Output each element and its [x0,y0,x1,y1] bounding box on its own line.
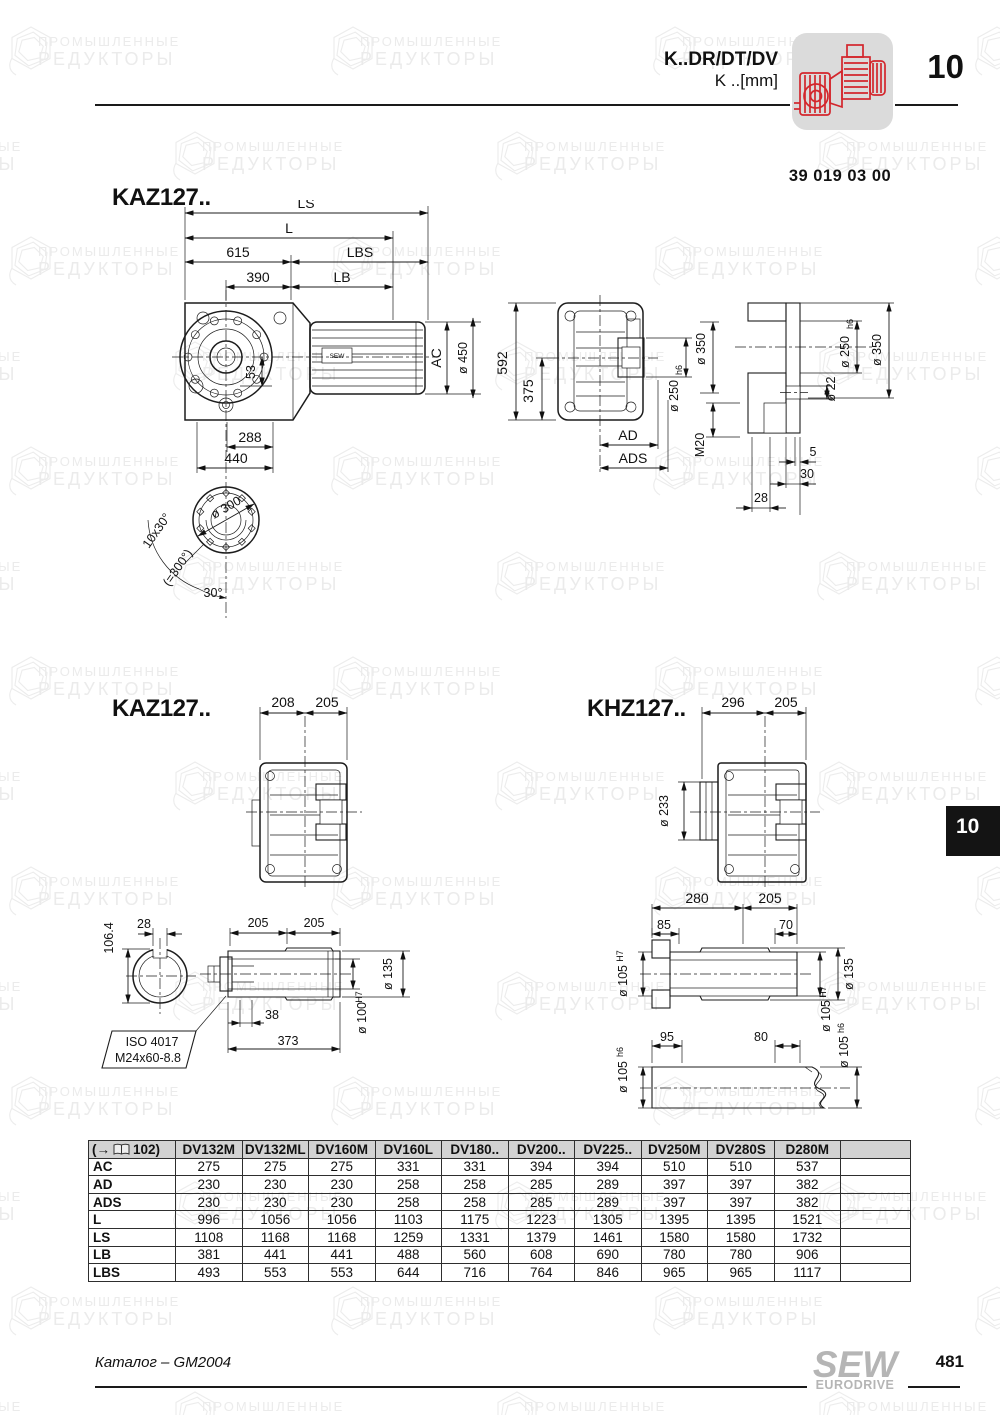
col-header: DV160L [375,1141,442,1159]
dim-ads: ADS [619,450,648,466]
table-cell: 258 [442,1193,509,1211]
watermark: ПРОМЫШЛЕННЫЕРЕДУКТОРЫ [974,1075,1000,1127]
table-cell: 230 [309,1176,376,1194]
table-cell: 510 [641,1158,708,1176]
watermark: ПРОМЫШЛЕННЫЕРЕДУКТОРЫ [0,130,22,182]
row-label: AD [89,1176,176,1194]
dim-205b: 205 [304,916,325,930]
table-cell: 1259 [375,1228,442,1246]
dim-105d: ø 105 [616,1061,630,1093]
table-cell: 1168 [309,1228,376,1246]
dim-105a: ø 105 [616,965,630,997]
table-row: LS11081168116812591331137914611580158017… [89,1228,911,1246]
dim-22: ø 22 [824,376,838,401]
table-cell: 488 [375,1246,442,1264]
table-cell: 1379 [508,1228,575,1246]
callout-screw: M24x60-8.8 [115,1051,181,1065]
dim-80: 80 [754,1030,768,1044]
table-cell: 394 [575,1158,642,1176]
watermark: ПРОМЫШЛЕННЫЕРЕДУКТОРЫ [974,865,1000,917]
table-cell: 644 [375,1264,442,1282]
gearmotor-icon-art [792,33,893,130]
dim-450: ø 450 [456,342,470,374]
col-header: DV180.. [442,1141,509,1159]
row-label: LB [89,1246,176,1264]
col-header: DV132ML [242,1141,309,1159]
watermark: ПРОМЫШЛЕННЫЕРЕДУКТОРЫ [494,130,666,182]
dim-373: 373 [278,1034,299,1048]
dim-100-fit: H7 [354,991,364,1003]
dim-233: ø 233 [657,795,671,827]
dim-250-mid: ø 250 [667,380,681,412]
drawing-top-views: 208 205 296 205 ø 233 [95,690,825,890]
col-header: DV160M [309,1141,376,1159]
table-cell: 1521 [774,1211,841,1229]
table-cell: 780 [641,1246,708,1264]
table-cell: 382 [774,1193,841,1211]
dim-85: 85 [657,918,671,932]
product-title: K..DR/DT/DV [520,49,778,71]
dim-28: 28 [137,917,151,931]
table-cell: 275 [242,1158,309,1176]
dim-105b-fit: H7 [818,986,828,998]
dim-350-sec: ø 350 [870,334,884,366]
footer-rule-left [95,1386,807,1388]
table-cell: 1461 [575,1228,642,1246]
gearmotor-icon [792,33,893,130]
dim-30: 30 [800,467,814,481]
header-rule-right [895,104,958,106]
drawing-number: 39 019 03 00 [770,167,910,186]
dim-300deg: (=300°) [160,547,195,589]
table-cell: 1395 [708,1211,775,1229]
table-cell: 1117 [774,1264,841,1282]
dim-205-kaz: 205 [315,694,339,710]
table-cell: 1108 [176,1228,243,1246]
col-header: D280M [774,1141,841,1159]
dim-135: ø 135 [381,958,395,990]
row-label: AC [89,1158,176,1176]
dim-105b: ø 105 [819,1000,833,1032]
table-cell: 906 [774,1246,841,1264]
dim-ad: AD [618,427,637,443]
watermark: ПРОМЫШЛЕННЫЕРЕДУКТОРЫ [172,130,344,182]
table-header-row: (→ 102) DV132M DV132ML DV160M DV160L DV1… [89,1141,911,1159]
motor-nameplate: SEW [330,353,346,360]
dim-205a: 205 [248,916,269,930]
dim-ac: AC [428,348,444,367]
dim-100: ø 100 [355,1002,369,1034]
dim-390: 390 [246,269,270,285]
table-cell: 397 [708,1176,775,1194]
unit-subtitle: K ..[mm] [520,71,778,91]
page-number: 481 [916,1352,964,1372]
table-cell: 230 [309,1193,376,1211]
table-cell-empty [841,1176,911,1194]
dim-105c-fit: h6 [836,1023,846,1033]
row-label: LBS [89,1264,176,1282]
watermark: ПРОМЫШЛЕННЫЕРЕДУКТОРЫ [8,25,180,77]
table-cell: 608 [508,1246,575,1264]
table-cell: 1175 [442,1211,509,1229]
dim-ls: LS [297,200,314,211]
col-header: DV280S [708,1141,775,1159]
table-ref-cell: (→ 102) [89,1141,176,1159]
col-header-empty [841,1141,911,1159]
col-header: DV225.. [575,1141,642,1159]
watermark: ПРОМЫШЛЕННЫЕРЕДУКТОРЫ [330,25,502,77]
drawing-kaz127-main: SEW LS L 615 [95,200,985,625]
table-cell-empty [841,1246,911,1264]
dimension-table: (→ 102) DV132M DV132ML DV160M DV160L DV1… [88,1140,911,1282]
dim-5: 5 [810,445,817,459]
table-cell: 285 [508,1176,575,1194]
table-cell: 846 [575,1264,642,1282]
col-header: DV132M [176,1141,243,1159]
dim-95: 95 [660,1030,674,1044]
watermark: ПРОМЫШЛЕННЫЕРЕДУКТОРЫ [8,1285,180,1337]
table-cell: 397 [708,1193,775,1211]
watermark: ПРОМЫШЛЕННЫЕРЕДУКТОРЫ [816,760,988,812]
watermark: ПРОМЫШЛЕННЫЕРЕДУКТОРЫ [816,1390,988,1415]
table-cell: 230 [176,1193,243,1211]
row-label: L [89,1211,176,1229]
table-body: AC275275275331331394394510510537AD230230… [89,1158,911,1281]
chapter-number: 10 [908,48,964,86]
dim-296: 296 [721,694,745,710]
watermark: ПРОМЫШЛЕННЫЕРЕДУКТОРЫ [0,550,22,602]
table-cell: 441 [242,1246,309,1264]
dim-105a-fit: H7 [615,950,625,962]
table-cell: 258 [442,1176,509,1194]
table-cell: 331 [375,1158,442,1176]
eurodrive-logo-text: EURODRIVE [804,1379,906,1392]
table-cell: 553 [242,1264,309,1282]
dim-592: 592 [494,351,510,375]
watermark: ПРОМЫШЛЕННЫЕРЕДУКТОРЫ [974,25,1000,77]
table-cell: 381 [176,1246,243,1264]
table-cell: 493 [176,1264,243,1282]
drawing-khz-shafts: 280 205 85 70 ø 105 H7 ø 135 ø 105 H7 95… [600,890,890,1120]
dim-208: 208 [271,694,295,710]
dim-350-mid: ø 350 [694,333,708,365]
table-row: LB381441441488560608690780780906 [89,1246,911,1264]
table-row: ADS230230230258258285289397397382 [89,1193,911,1211]
table-cell: 690 [575,1246,642,1264]
table-cell: 397 [641,1193,708,1211]
table-cell: 1580 [708,1228,775,1246]
callout-iso: ISO 4017 [126,1035,179,1049]
watermark: ПРОМЫШЛЕННЫЕРЕДУКТОРЫ [8,1075,180,1127]
footer-catalog: Каталог – GM2004 [95,1354,231,1371]
watermark: ПРОМЫШЛЕННЫЕРЕДУКТОРЫ [0,1180,22,1232]
table-cell-empty [841,1264,911,1282]
table-cell: 230 [242,1176,309,1194]
table-cell-empty [841,1158,911,1176]
dim-30deg: 30° [204,586,223,600]
watermark: ПРОМЫШЛЕННЫЕРЕДУКТОРЫ [330,1075,502,1127]
table-cell: 996 [176,1211,243,1229]
table-cell: 289 [575,1176,642,1194]
row-label: LS [89,1228,176,1246]
dim-28-sec: 28 [754,491,768,505]
table-cell: 230 [176,1176,243,1194]
table-cell: 1168 [242,1228,309,1246]
dim-53: 53 [244,365,258,379]
table-cell: 764 [508,1264,575,1282]
dim-lbs: LBS [347,244,373,260]
header-title-block: K..DR/DT/DV K ..[mm] [520,49,778,91]
table-cell: 397 [641,1176,708,1194]
table-cell-empty [841,1211,911,1229]
dim-38: 38 [265,1008,279,1022]
footer-rule-right [908,1386,960,1388]
watermark: ПРОМЫШЛЕННЫЕРЕДУКТОРЫ [0,760,22,812]
chapter-side-tab: 10 [946,806,1000,856]
dim-288: 288 [238,429,262,445]
table-cell-empty [841,1193,911,1211]
table-cell: 510 [708,1158,775,1176]
col-header: DV200.. [508,1141,575,1159]
dim-205-khz: 205 [774,694,798,710]
dim-106: 106.4 [102,922,116,953]
header-rule-left [95,104,790,106]
table-cell: 275 [309,1158,376,1176]
col-header: DV250M [641,1141,708,1159]
table-cell: 394 [508,1158,575,1176]
dim-250-sec: ø 250 [838,336,852,368]
table-cell: 553 [309,1264,376,1282]
table-cell: 1395 [641,1211,708,1229]
watermark: ПРОМЫШЛЕННЫЕРЕДУКТОРЫ [172,1390,344,1415]
table-cell: 275 [176,1158,243,1176]
dim-105c: ø 105 [837,1036,851,1068]
table-cell: 285 [508,1193,575,1211]
sew-logo: SEW EURODRIVE [804,1346,906,1392]
watermark: ПРОМЫШЛЕННЫЕРЕДУКТОРЫ [494,1390,666,1415]
dim-280: 280 [685,890,709,906]
table-cell: 382 [774,1176,841,1194]
watermark: ПРОМЫШЛЕННЫЕРЕДУКТОРЫ [0,1390,22,1415]
table-cell: 441 [309,1246,376,1264]
table-row: AD230230230258258285289397397382 [89,1176,911,1194]
watermark: ПРОМЫШЛЕННЫЕРЕДУКТОРЫ [652,1285,824,1337]
watermark: ПРОМЫШЛЕННЫЕРЕДУКТОРЫ [974,1285,1000,1337]
dim-375: 375 [520,379,536,403]
dim-lb: LB [333,269,350,285]
watermark: ПРОМЫШЛЕННЫЕРЕДУКТОРЫ [330,1285,502,1337]
table-cell: 1103 [375,1211,442,1229]
book-icon [113,1143,130,1156]
table-cell: 1056 [309,1211,376,1229]
watermark: ПРОМЫШЛЕННЫЕРЕДУКТОРЫ [0,970,22,1022]
table-cell: 230 [242,1193,309,1211]
table-cell: 1580 [641,1228,708,1246]
table-row: AC275275275331331394394510510537 [89,1158,911,1176]
dim-250-fit: h6 [674,365,684,375]
table-cell: 1305 [575,1211,642,1229]
watermark: ПРОМЫШЛЕННЫЕРЕДУКТОРЫ [0,340,22,392]
dim-10x30: 10x30° [140,511,174,551]
table-cell: 965 [641,1264,708,1282]
watermark: ПРОМЫШЛЕННЫЕРЕДУКТОРЫ [974,655,1000,707]
table-row: L996105610561103117512231305139513951521 [89,1211,911,1229]
dim-m20: M20 [693,433,707,457]
dim-615: 615 [226,244,250,260]
table-cell: 965 [708,1264,775,1282]
table-cell: 1223 [508,1211,575,1229]
table-cell: 1056 [242,1211,309,1229]
dim-70: 70 [779,918,793,932]
row-label: ADS [89,1193,176,1211]
dim-205-shaft: 205 [758,890,782,906]
table-cell: 780 [708,1246,775,1264]
table-row: LBS4935535536447167648469659651117 [89,1264,911,1282]
catalog-page: ПРОМЫШЛЕННЫЕРЕДУКТОРЫПРОМЫШЛЕННЫЕРЕДУКТО… [0,0,1000,1415]
table-cell: 258 [375,1176,442,1194]
table-cell: 1732 [774,1228,841,1246]
dim-135-shaft: ø 135 [842,958,856,990]
table-cell-empty [841,1228,911,1246]
dim-105d-fit: h6 [615,1047,625,1057]
table-cell: 560 [442,1246,509,1264]
table-cell: 258 [375,1193,442,1211]
table-cell: 716 [442,1264,509,1282]
dim-440: 440 [224,450,248,466]
dim-l: L [285,220,293,236]
ref-page: 102) [133,1142,160,1157]
ref-arrow: (→ [92,1142,110,1157]
table-cell: 289 [575,1193,642,1211]
dim-250-sec-fit: h6 [845,319,855,329]
table-cell: 537 [774,1158,841,1176]
drawing-hollow-shaft: 106.4 28 205 205 ø 135 ø 100 H7 [95,900,425,1075]
table-cell: 331 [442,1158,509,1176]
table-cell: 1331 [442,1228,509,1246]
